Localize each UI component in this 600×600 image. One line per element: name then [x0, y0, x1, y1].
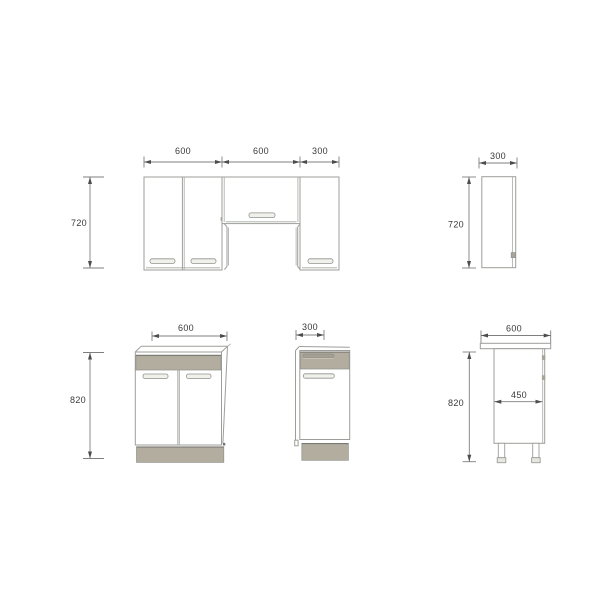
dim-label-wall-width-3: 300 [312, 146, 328, 156]
hinge-mark [542, 355, 545, 360]
drawing-canvas: 600 600 300 720 [0, 0, 600, 600]
sink-front-panel [136, 355, 221, 370]
dim-label-base300-width: 300 [302, 322, 318, 332]
dimension-wall-side-depth: 300 [479, 151, 517, 169]
door-handle [249, 213, 275, 218]
base-cabinet-300-body [295, 347, 350, 461]
door-handle [308, 259, 333, 264]
dimension-base600-width: 600 [152, 323, 227, 341]
side-foot-mark [295, 440, 298, 446]
base-cabinet-side-view: 600 820 450 [448, 324, 551, 463]
plinth [302, 443, 349, 460]
hinge-mark [511, 253, 515, 258]
base-cabinet-600-front-view: 600 820 [70, 323, 231, 462]
dimension-base300-width: 300 [296, 322, 324, 340]
door-handle [150, 259, 175, 264]
dim-label-base-side-depth: 600 [506, 324, 522, 334]
dimension-base600-height: 820 [70, 353, 104, 459]
dimension-wall-height: 720 [71, 177, 104, 268]
wall-cabinet-side-view: 300 720 [448, 151, 517, 268]
dim-label-wall-width-1: 600 [175, 146, 191, 156]
side-panel-edge [223, 346, 228, 443]
dimension-wall-side-height: 720 [448, 177, 476, 268]
wall-cabinet-left-unit [144, 177, 223, 270]
door-handle [187, 374, 212, 379]
wall-cabinet-hood-unit [222, 177, 300, 270]
adjustable-legs [497, 443, 540, 462]
leg [533, 443, 539, 457]
leg-foot [532, 458, 541, 463]
technical-drawing: 600 600 300 720 [0, 0, 600, 600]
dim-label-wall-width-2: 600 [253, 146, 269, 156]
base-cabinet-600-body [135, 344, 231, 463]
corner-mark [223, 443, 225, 446]
dimension-base-side-height: 820 [448, 352, 476, 462]
door-handle [191, 259, 216, 264]
drawer-handle [303, 354, 334, 358]
dimension-wall-widths: 600 600 300 [144, 146, 339, 168]
hood-opening [224, 224, 300, 270]
dimension-base-side-depth: 600 [481, 324, 551, 344]
door-handle [143, 374, 168, 379]
base-cabinet-300-front-view: 300 [295, 322, 350, 460]
dim-label-base-side-inner-depth: 450 [511, 390, 527, 400]
base-cabinet-side-body: 450 [480, 343, 550, 462]
door-handle [303, 374, 334, 378]
dim-label-wall-side-depth: 300 [490, 151, 506, 161]
hinge-mark [542, 375, 545, 380]
dim-label-wall-side-height: 720 [448, 220, 464, 230]
dim-label-base600-height: 820 [70, 395, 86, 405]
dim-label-base600-width: 600 [178, 323, 194, 333]
wall-cabinet-side-body [482, 177, 516, 268]
worktop [480, 343, 550, 348]
wall-cabinet-right-unit [300, 177, 339, 270]
dim-label-wall-height: 720 [71, 218, 87, 228]
dim-label-base-side-height: 820 [448, 398, 464, 408]
leg [498, 443, 504, 457]
wall-cabinets-front-view: 600 600 300 720 [71, 146, 339, 270]
plinth [137, 447, 224, 463]
leg-foot [497, 458, 506, 463]
